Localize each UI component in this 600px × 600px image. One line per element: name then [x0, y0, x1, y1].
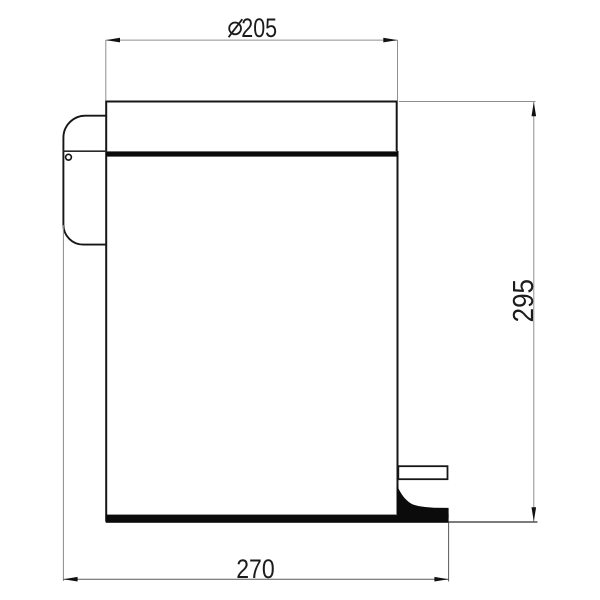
svg-text:270: 270 [236, 554, 275, 584]
svg-text:295: 295 [508, 279, 540, 322]
svg-text:205: 205 [241, 13, 277, 43]
